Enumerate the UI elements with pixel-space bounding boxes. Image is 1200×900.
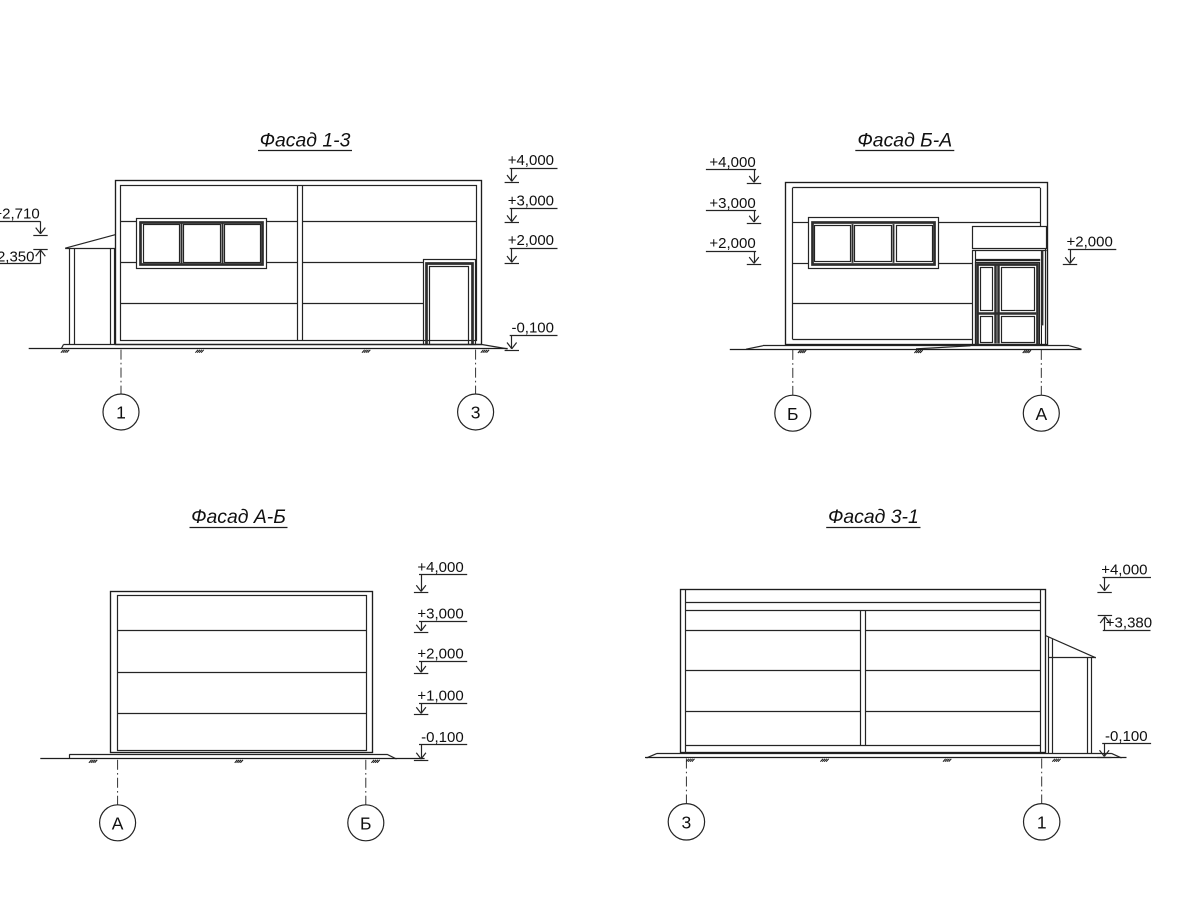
svg-text:+2,710: +2,710 (0, 205, 40, 222)
svg-text:1: 1 (116, 403, 126, 423)
svg-text:3: 3 (471, 403, 481, 423)
svg-text:-0,100: -0,100 (421, 729, 464, 746)
svg-text:+3,380: +3,380 (1106, 615, 1152, 632)
svg-text:3: 3 (682, 812, 692, 832)
svg-text:Фасад Б-А: Фасад Б-А (857, 130, 952, 152)
svg-text:+2,000: +2,000 (1067, 234, 1113, 251)
svg-text:Б: Б (787, 404, 798, 424)
svg-text:+3,000: +3,000 (508, 193, 554, 210)
svg-text:+2,000: +2,000 (417, 646, 463, 663)
svg-text:+4,000: +4,000 (709, 154, 755, 171)
svg-text:Фасад А-Б: Фасад А-Б (191, 506, 286, 528)
svg-text:Фасад 1-3: Фасад 1-3 (260, 130, 351, 152)
svg-text:-0,100: -0,100 (1105, 728, 1148, 745)
svg-text:А: А (112, 813, 124, 833)
svg-text:+3,000: +3,000 (417, 606, 463, 623)
svg-text:+4,000: +4,000 (508, 152, 554, 169)
svg-text:1: 1 (1037, 812, 1047, 832)
svg-text:+2,000: +2,000 (709, 235, 755, 252)
svg-text:-0,100: -0,100 (511, 320, 554, 337)
svg-text:+2,000: +2,000 (508, 232, 554, 249)
svg-text:+4,000: +4,000 (1101, 562, 1147, 579)
svg-text:Б: Б (360, 813, 371, 833)
svg-text:А: А (1035, 404, 1047, 424)
svg-text:+4,000: +4,000 (417, 559, 463, 576)
svg-text:2,350: 2,350 (0, 249, 35, 266)
svg-text:+1,000: +1,000 (417, 687, 463, 704)
svg-text:+3,000: +3,000 (709, 195, 755, 212)
svg-text:Фасад 3-1: Фасад 3-1 (828, 506, 919, 528)
